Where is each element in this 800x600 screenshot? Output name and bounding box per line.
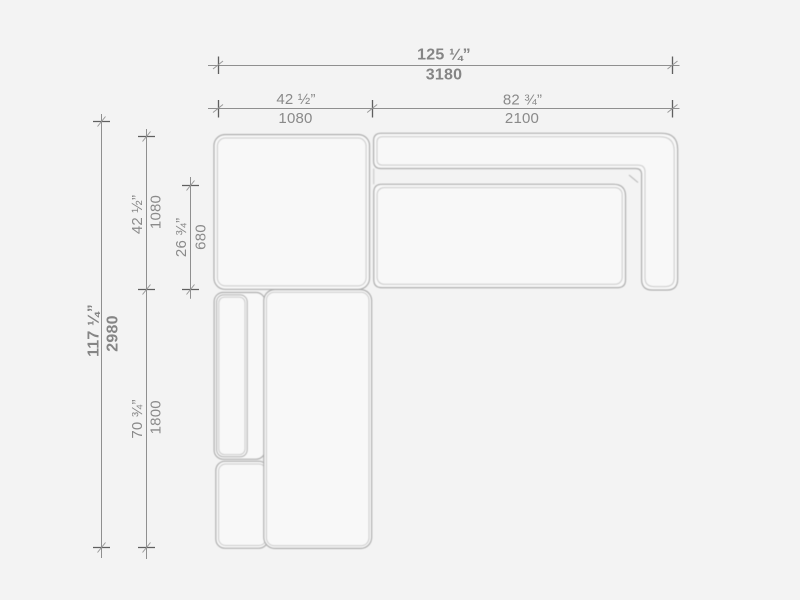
svg-text:42 ½”: 42 ½” <box>129 195 146 234</box>
svg-text:70 ¾”: 70 ¾” <box>129 399 146 438</box>
svg-text:125 ¼”: 125 ¼” <box>417 47 471 64</box>
svg-text:1080: 1080 <box>148 195 165 229</box>
svg-text:1080: 1080 <box>278 110 312 127</box>
svg-text:3180: 3180 <box>426 67 462 84</box>
svg-text:680: 680 <box>192 224 209 250</box>
svg-text:1800: 1800 <box>148 400 165 434</box>
svg-text:42 ½”: 42 ½” <box>276 91 315 108</box>
svg-text:2980: 2980 <box>105 315 122 351</box>
svg-text:82 ¾”: 82 ¾” <box>503 92 542 109</box>
svg-text:26 ¾”: 26 ¾” <box>173 218 190 257</box>
svg-text:117 ¼”: 117 ¼” <box>85 304 102 357</box>
svg-text:2100: 2100 <box>505 110 539 127</box>
